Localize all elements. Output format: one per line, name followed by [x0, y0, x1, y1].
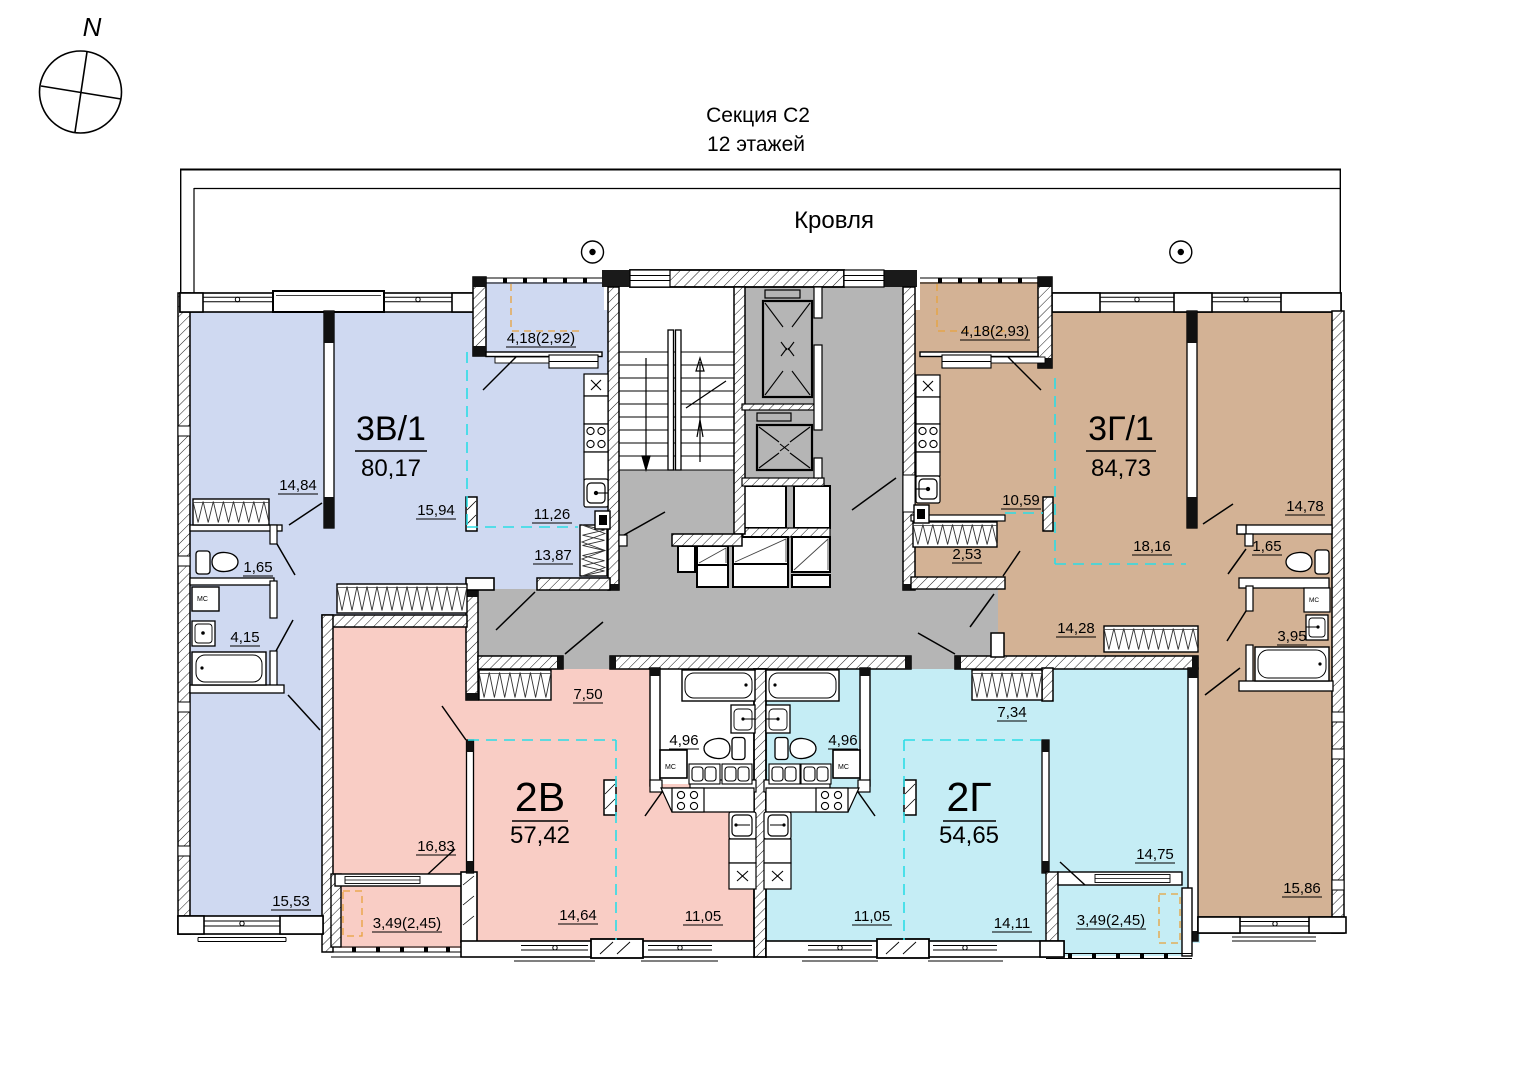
svg-text:84,73: 84,73: [1091, 455, 1151, 482]
svg-text:4,96: 4,96: [669, 732, 698, 749]
svg-text:15,53: 15,53: [272, 893, 310, 910]
svg-text:14,64: 14,64: [559, 907, 597, 924]
svg-text:7,50: 7,50: [573, 686, 602, 703]
svg-text:14,28: 14,28: [1057, 620, 1095, 637]
svg-text:МС: МС: [838, 764, 849, 771]
svg-text:1,65: 1,65: [1252, 538, 1281, 555]
svg-text:15,86: 15,86: [1283, 880, 1321, 897]
svg-text:4,18(2,92): 4,18(2,92): [507, 330, 575, 347]
svg-text:80,17: 80,17: [361, 455, 421, 482]
svg-text:13,87: 13,87: [534, 547, 572, 564]
svg-text:Кровля: Кровля: [794, 207, 874, 234]
svg-text:57,42: 57,42: [510, 822, 570, 849]
svg-text:3,49(2,45): 3,49(2,45): [373, 915, 441, 932]
svg-text:2Г: 2Г: [946, 774, 991, 820]
svg-text:3,49(2,45): 3,49(2,45): [1077, 912, 1145, 929]
svg-text:12 этажей: 12 этажей: [707, 133, 805, 156]
svg-text:МС: МС: [1309, 597, 1319, 604]
svg-text:4,15: 4,15: [230, 629, 259, 646]
svg-text:4,18(2,93): 4,18(2,93): [961, 323, 1029, 340]
svg-text:10,59: 10,59: [1002, 492, 1040, 509]
svg-text:14,84: 14,84: [279, 477, 317, 494]
svg-text:3В/1: 3В/1: [356, 410, 426, 448]
svg-text:Секция С2: Секция С2: [706, 104, 810, 127]
svg-text:7,34: 7,34: [997, 704, 1026, 721]
svg-text:54,65: 54,65: [939, 822, 999, 849]
svg-text:2,53: 2,53: [952, 546, 981, 563]
svg-text:N: N: [83, 12, 102, 42]
svg-text:МС: МС: [197, 596, 208, 603]
svg-text:3,95: 3,95: [1277, 628, 1306, 645]
svg-text:14,75: 14,75: [1136, 846, 1174, 863]
svg-text:1,65: 1,65: [243, 559, 272, 576]
svg-text:4,96: 4,96: [828, 732, 857, 749]
svg-text:2В: 2В: [515, 774, 565, 820]
svg-text:14,78: 14,78: [1286, 498, 1324, 515]
svg-text:15,94: 15,94: [417, 502, 455, 519]
svg-text:МС: МС: [665, 764, 676, 771]
svg-text:16,83: 16,83: [417, 838, 455, 855]
svg-text:14,11: 14,11: [994, 915, 1030, 932]
svg-text:18,16: 18,16: [1133, 538, 1171, 555]
svg-text:11,05: 11,05: [685, 908, 721, 925]
svg-text:3Г/1: 3Г/1: [1088, 410, 1154, 448]
svg-text:11,05: 11,05: [854, 908, 890, 925]
svg-text:11,26: 11,26: [534, 506, 570, 523]
